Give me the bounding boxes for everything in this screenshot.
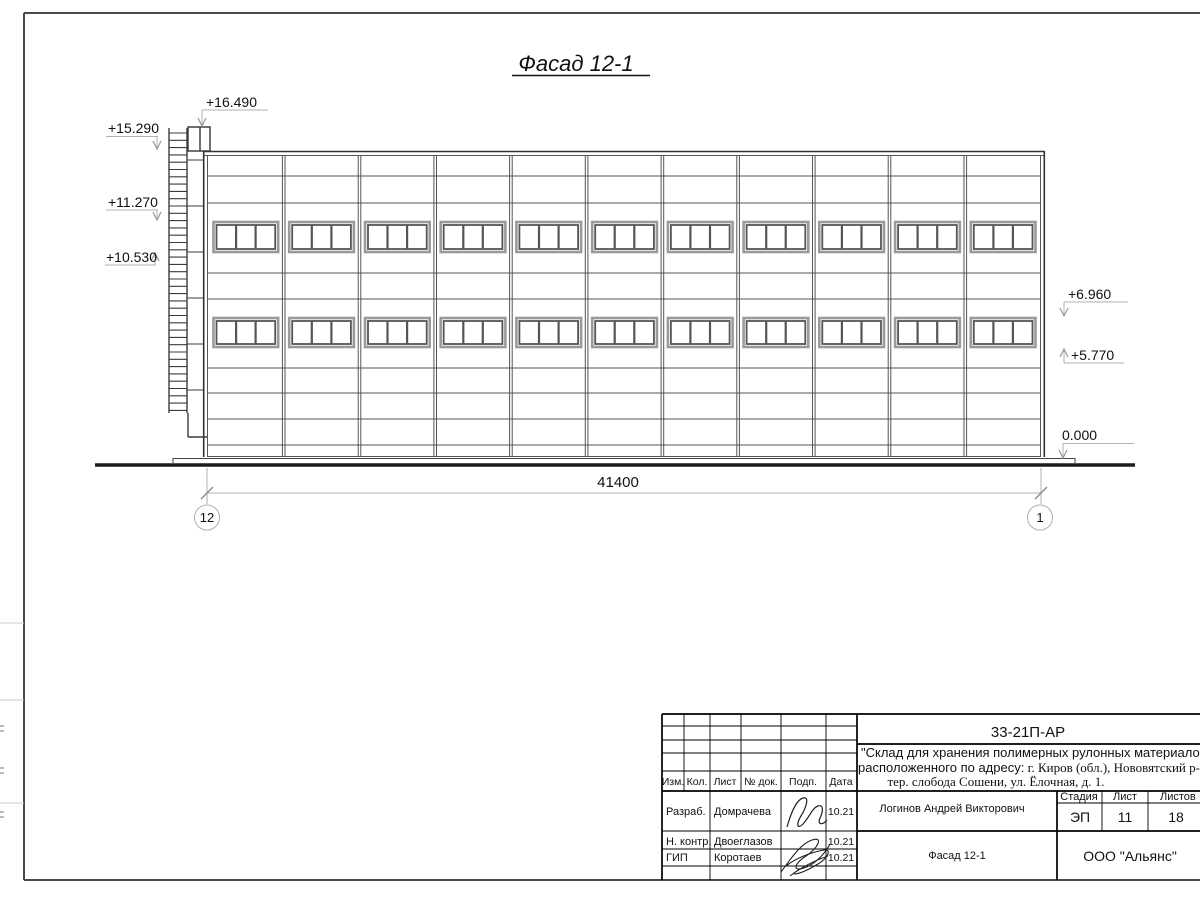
svg-text:+11.270: +11.270	[108, 194, 158, 210]
title-block-text: Изм. Кол. Лист № док. Подп. Дата Разраб.…	[662, 724, 1200, 876]
stage-header: Стадия	[1060, 791, 1098, 803]
panel-joint	[434, 156, 437, 457]
date-0: 10.21	[828, 806, 854, 818]
facade-window	[895, 318, 960, 347]
svg-text:1: 1	[1036, 510, 1043, 525]
ladder-brackets	[187, 160, 204, 390]
facade-drawing-svg: Фасад 12-1 41400 12 1	[0, 0, 1200, 900]
svg-text:0.000: 0.000	[1062, 427, 1097, 443]
drawing-title: Фасад 12-1	[518, 51, 633, 76]
elevation-mark-15290: +15.290	[106, 120, 161, 149]
company: ООО "Альянс"	[1083, 848, 1177, 864]
facade-window	[441, 318, 506, 347]
col-podp: Подп.	[789, 776, 817, 788]
panel-lines	[208, 176, 1041, 445]
stage-value: ЭП	[1070, 809, 1090, 825]
dimension-value: 41400	[597, 474, 639, 491]
elevation-mark-5770: +5.770	[1060, 347, 1124, 363]
facade-window	[441, 222, 506, 252]
panel-joint	[964, 156, 967, 457]
facade-window	[289, 318, 354, 347]
panel-joint	[661, 156, 664, 457]
name-2: Коротаев	[714, 852, 762, 864]
window-bands	[214, 222, 1036, 347]
facade-window	[971, 318, 1036, 347]
facade-window	[516, 318, 581, 347]
name-1: Двоеглазов	[714, 836, 773, 848]
project-line1: "Склад для хранения полимерных рулонных …	[861, 745, 1200, 760]
axis-bubble-1: 1	[1028, 505, 1053, 530]
svg-text:12: 12	[200, 510, 214, 525]
left-stamp-marks	[0, 623, 24, 817]
roof-parapet	[188, 127, 210, 151]
facade-window	[668, 318, 733, 347]
panel-joint	[358, 156, 361, 457]
facade-window	[592, 318, 657, 347]
panel-joint	[282, 156, 285, 457]
sheet-header: Лист	[1113, 791, 1137, 803]
role-0: Разраб.	[666, 806, 706, 818]
panel-joint	[813, 156, 816, 457]
facade-window	[971, 222, 1036, 252]
facade-window	[214, 222, 279, 252]
facade-window	[214, 318, 279, 347]
facade-window	[289, 222, 354, 252]
fire-escape-ladder	[169, 128, 207, 437]
col-ndok: № док.	[744, 776, 778, 788]
building-outline	[173, 151, 1075, 463]
facade-window	[819, 222, 884, 252]
elevation-mark-10530: +10.530	[105, 249, 159, 265]
signature-gip	[781, 839, 830, 876]
facade-window	[744, 222, 809, 252]
drawing-sheet: Фасад 12-1 41400 12 1	[0, 0, 1200, 900]
facade-window	[365, 222, 430, 252]
panel-joint	[737, 156, 740, 457]
col-list: Лист	[714, 776, 737, 788]
sheet-title: Фасад 12-1	[928, 850, 986, 862]
role-2: ГИП	[666, 852, 688, 864]
facade-window	[365, 318, 430, 347]
panel-joint	[888, 156, 891, 457]
project-line2: расположенного по адресу: г. Киров (обл.…	[858, 760, 1200, 775]
date-1: 10.21	[828, 836, 854, 848]
panel-joints	[282, 156, 966, 457]
col-izm: Изм.	[662, 776, 685, 788]
elevation-mark-16490: +16.490	[198, 94, 268, 126]
svg-text:+10.530: +10.530	[106, 249, 157, 265]
signature-razrab	[787, 798, 827, 827]
elevation-mark-6960: +6.960	[1060, 286, 1128, 316]
chief-name: Логинов Андрей Викторович	[879, 803, 1024, 815]
elevation-mark-0000: 0.000	[1059, 427, 1134, 458]
doc-number: 33-21П-АР	[991, 724, 1065, 741]
elevation-mark-11270: +11.270	[106, 194, 161, 220]
role-1: Н. контр.	[666, 836, 711, 848]
svg-text:+16.490: +16.490	[206, 94, 257, 110]
facade-window	[516, 222, 581, 252]
ladder-rungs	[169, 133, 187, 410]
sheets-value: 18	[1168, 809, 1184, 825]
col-data: Дата	[829, 776, 852, 788]
facade-window	[744, 318, 809, 347]
sheet-value: 11	[1118, 809, 1133, 825]
facade-window	[592, 222, 657, 252]
panel-joint	[585, 156, 588, 457]
facade-window	[819, 318, 884, 347]
svg-text:+6.960: +6.960	[1068, 286, 1111, 302]
project-line3: тер. слобода Сошени, ул. Ёлочная, д. 1.	[887, 774, 1104, 789]
facade-window	[895, 222, 960, 252]
svg-text:+15.290: +15.290	[108, 120, 159, 136]
date-2: 10.21	[828, 852, 854, 864]
name-0: Домрачева	[714, 806, 772, 818]
svg-text:+5.770: +5.770	[1071, 347, 1114, 363]
axis-bubble-12: 12	[195, 505, 220, 530]
sheets-header: Листов	[1160, 791, 1196, 803]
facade-window	[668, 222, 733, 252]
col-kol: Кол.	[687, 776, 708, 788]
dimension-41400: 41400	[201, 468, 1047, 504]
panel-joint	[510, 156, 513, 457]
